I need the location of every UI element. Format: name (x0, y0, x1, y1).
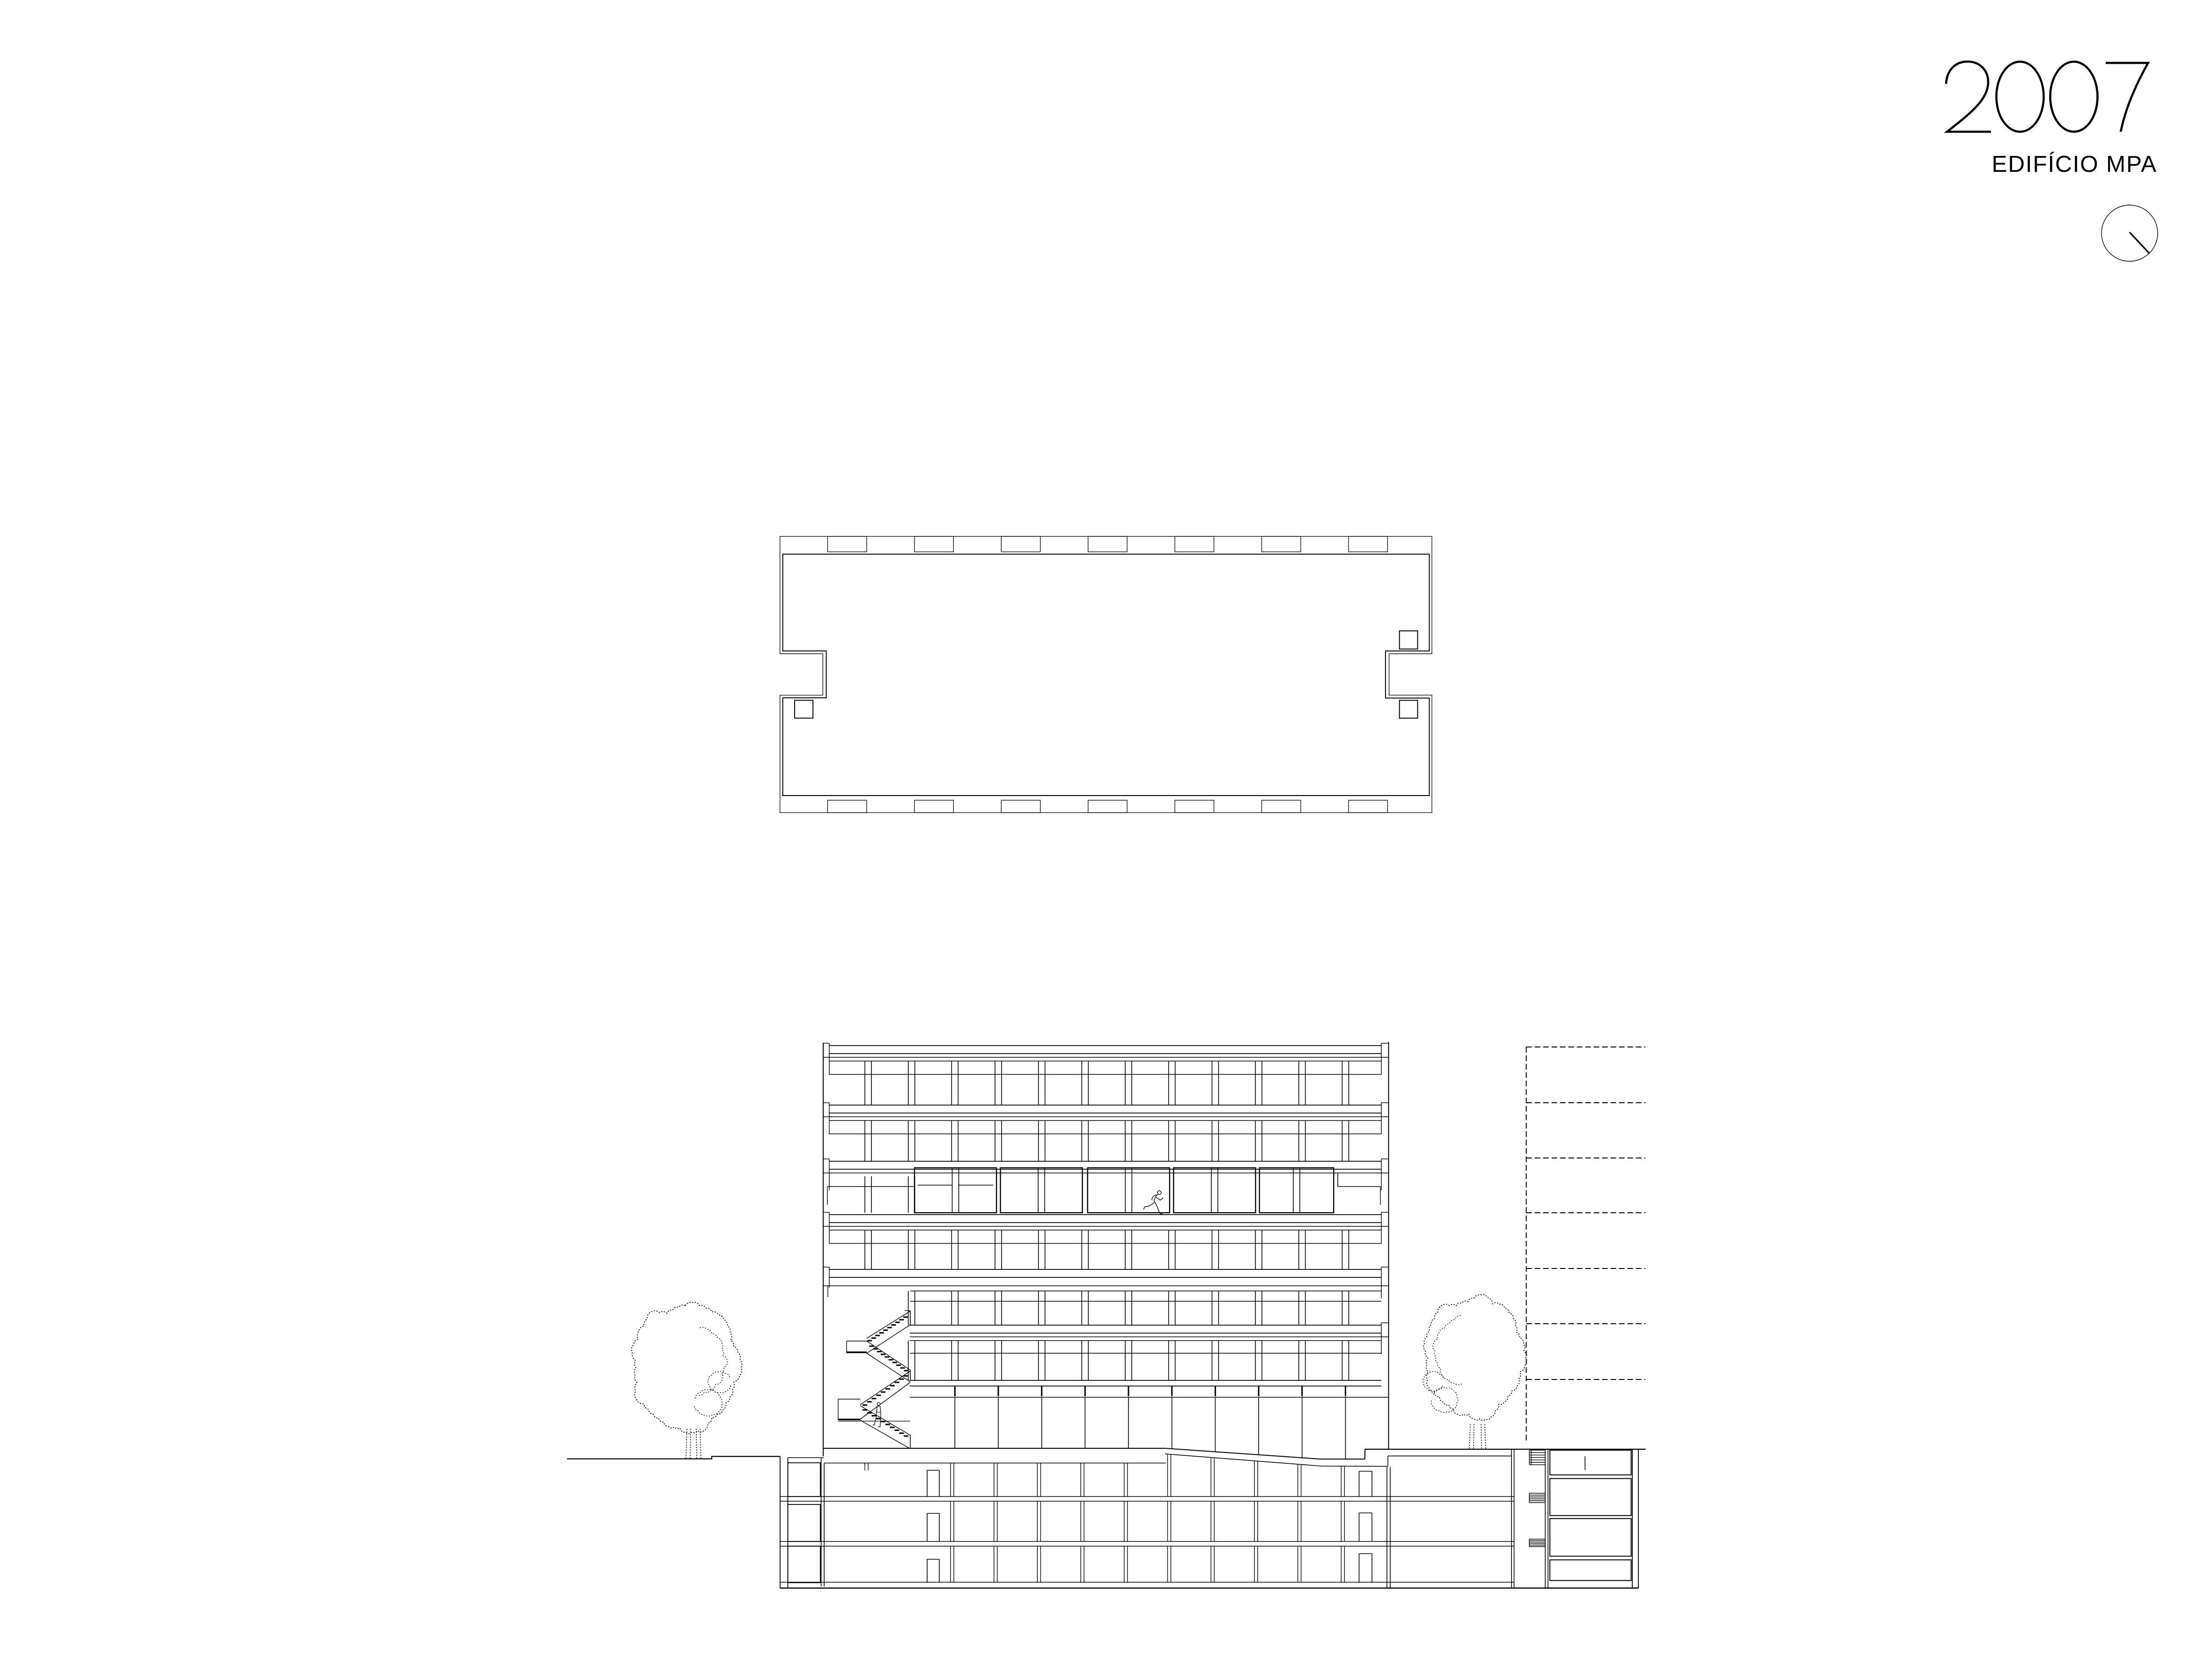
svg-text:EDIFÍCIO MPA: EDIFÍCIO MPA (1992, 151, 2157, 177)
